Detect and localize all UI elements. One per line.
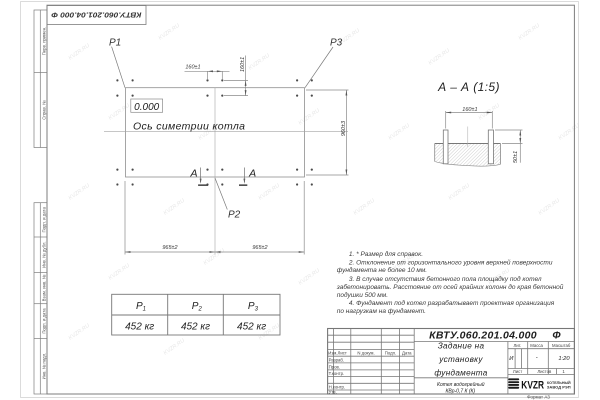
svg-text:N докум.: N докум. (357, 350, 374, 355)
svg-text:452 кг: 452 кг (181, 322, 210, 333)
svg-text:А – А (1:5): А – А (1:5) (437, 80, 500, 94)
svg-text:3. В случае отсутствия бетонно: 3. В случае отсутствия бетонного пола пл… (349, 275, 542, 283)
svg-text:подушки 500 мм.: подушки 500 мм. (337, 291, 388, 299)
svg-text:Перв. примен.: Перв. примен. (41, 27, 46, 56)
svg-text:452 кг: 452 кг (237, 322, 266, 333)
svg-text:Р3: Р3 (330, 37, 343, 48)
svg-text:50±1: 50±1 (513, 151, 519, 163)
svg-text:Подп. и дата: Подп. и дата (41, 308, 46, 334)
svg-text:965±2: 965±2 (162, 245, 177, 251)
svg-text:Лист: Лист (513, 369, 522, 374)
svg-text:Изм.Лист: Изм.Лист (328, 350, 347, 355)
svg-text:Пров.: Пров. (329, 364, 340, 369)
svg-text:Р2: Р2 (228, 209, 241, 220)
svg-text:960±3: 960±3 (341, 120, 347, 136)
svg-text:-: - (536, 355, 538, 361)
svg-text:Инв. № подл.: Инв. № подл. (41, 353, 46, 380)
svg-text:Задание на: Задание на (438, 342, 485, 351)
svg-text:Подп.: Подп. (385, 350, 396, 355)
svg-text:160±1: 160±1 (185, 64, 200, 70)
svg-text:1:20: 1:20 (558, 356, 570, 362)
svg-text:Лит.: Лит. (513, 343, 521, 348)
svg-text:Утв.: Утв. (329, 389, 337, 394)
svg-text:Подп. и дата: Подп. и дата (41, 207, 46, 233)
svg-text:160±1: 160±1 (462, 107, 477, 113)
svg-text:Формат А3: Формат А3 (527, 395, 550, 400)
svg-text:2. Отклонение от горизонтально: 2. Отклонение от горизонтального уровня … (348, 259, 553, 267)
svg-text:Масса: Масса (530, 343, 543, 348)
svg-text:по нагрузкам на фундамент.: по нагрузкам на фундамент. (337, 307, 426, 315)
svg-text:Взам. инв. №: Взам. инв. № (41, 274, 46, 301)
svg-text:Ф: Ф (552, 329, 561, 341)
svg-text:452 кг: 452 кг (125, 322, 154, 333)
svg-text:фундамента: фундамента (434, 369, 487, 378)
svg-text:Ось симетрии котла: Ось симетрии котла (133, 121, 245, 133)
svg-text:KVZR: KVZR (521, 380, 544, 392)
svg-text:фундамента не более 10 мм.: фундамента не более 10 мм. (337, 266, 428, 274)
svg-text:965±2: 965±2 (252, 245, 267, 251)
svg-text:160±1: 160±1 (240, 57, 246, 72)
svg-text:КОТЕЛЬНЫЙ: КОТЕЛЬНЫЙ (547, 381, 571, 385)
svg-text:А: А (189, 168, 197, 180)
svg-text:А: А (248, 168, 256, 180)
svg-text:1. * Размер для справок.: 1. * Размер для справок. (349, 250, 423, 258)
svg-text:КВр-0,7 К (К): КВр-0,7 К (К) (445, 388, 475, 394)
svg-text:Листов: Листов (537, 369, 552, 374)
svg-text:забетонировать. Расстояние от: забетонировать. Расстояние от осей крайн… (336, 283, 564, 291)
svg-text:Р1: Р1 (109, 37, 121, 48)
svg-text:Инв. № дубл.: Инв. № дубл. (41, 241, 46, 268)
svg-text:Котел водогрейный: Котел водогрейный (437, 381, 485, 388)
svg-text:Разраб.: Разраб. (329, 357, 344, 362)
svg-text:4. Фундамент под котел разраба: 4. Фундамент под котел разрабатывает про… (349, 299, 555, 307)
svg-text:КВТУ.060.201.04.000: КВТУ.060.201.04.000 (429, 329, 537, 341)
svg-text:Дата: Дата (402, 350, 412, 355)
svg-text:Т.контр.: Т.контр. (329, 371, 345, 376)
svg-text:КВТУ.060.201.04.000 Ф: КВТУ.060.201.04.000 Ф (51, 10, 141, 19)
svg-text:0.000: 0.000 (134, 102, 159, 113)
svg-text:Справ. №: Справ. № (41, 100, 46, 120)
svg-text:ЗАВОД РЭП: ЗАВОД РЭП (547, 385, 571, 389)
svg-text:Масштаб: Масштаб (552, 343, 571, 348)
svg-text:установку: установку (438, 355, 483, 364)
